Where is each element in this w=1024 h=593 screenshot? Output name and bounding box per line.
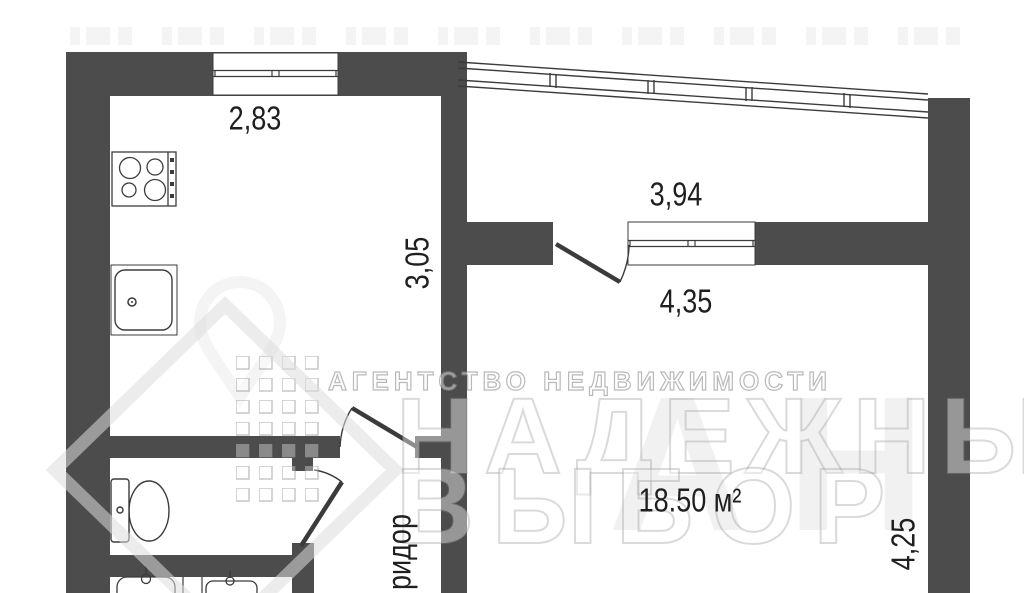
room-window [628,222,755,265]
dim-balcony-width: 3,94 [650,178,703,211]
toilet-symbol [111,479,169,542]
kitchen-door [340,408,417,447]
bathroom-door [301,470,342,546]
kitchen-sink-symbol [111,265,177,335]
corridor-label: ридор [383,514,416,590]
sink-symbol [206,570,257,593]
balcony-door [556,244,629,282]
dim-room-depth: 4,25 [887,518,920,571]
balcony-glazing [458,62,928,118]
watermark-ghost-text-row [70,27,970,45]
dim-kitchen-depth: 3,05 [401,237,434,290]
washbasin-symbol [117,566,175,593]
room-area-label: 18.50 м² [639,484,742,517]
stove-symbol [112,152,176,206]
dim-room-width: 4,35 [660,285,713,318]
dim-kitchen-width: 2,83 [229,102,282,135]
plan-linework [0,0,1024,593]
floor-plan: АГЕНТСТВО НЕДВИЖИМОСТИ НАДЕЖНЫЙ ВЫБОР АН… [0,0,1024,593]
kitchen-window [213,53,338,95]
